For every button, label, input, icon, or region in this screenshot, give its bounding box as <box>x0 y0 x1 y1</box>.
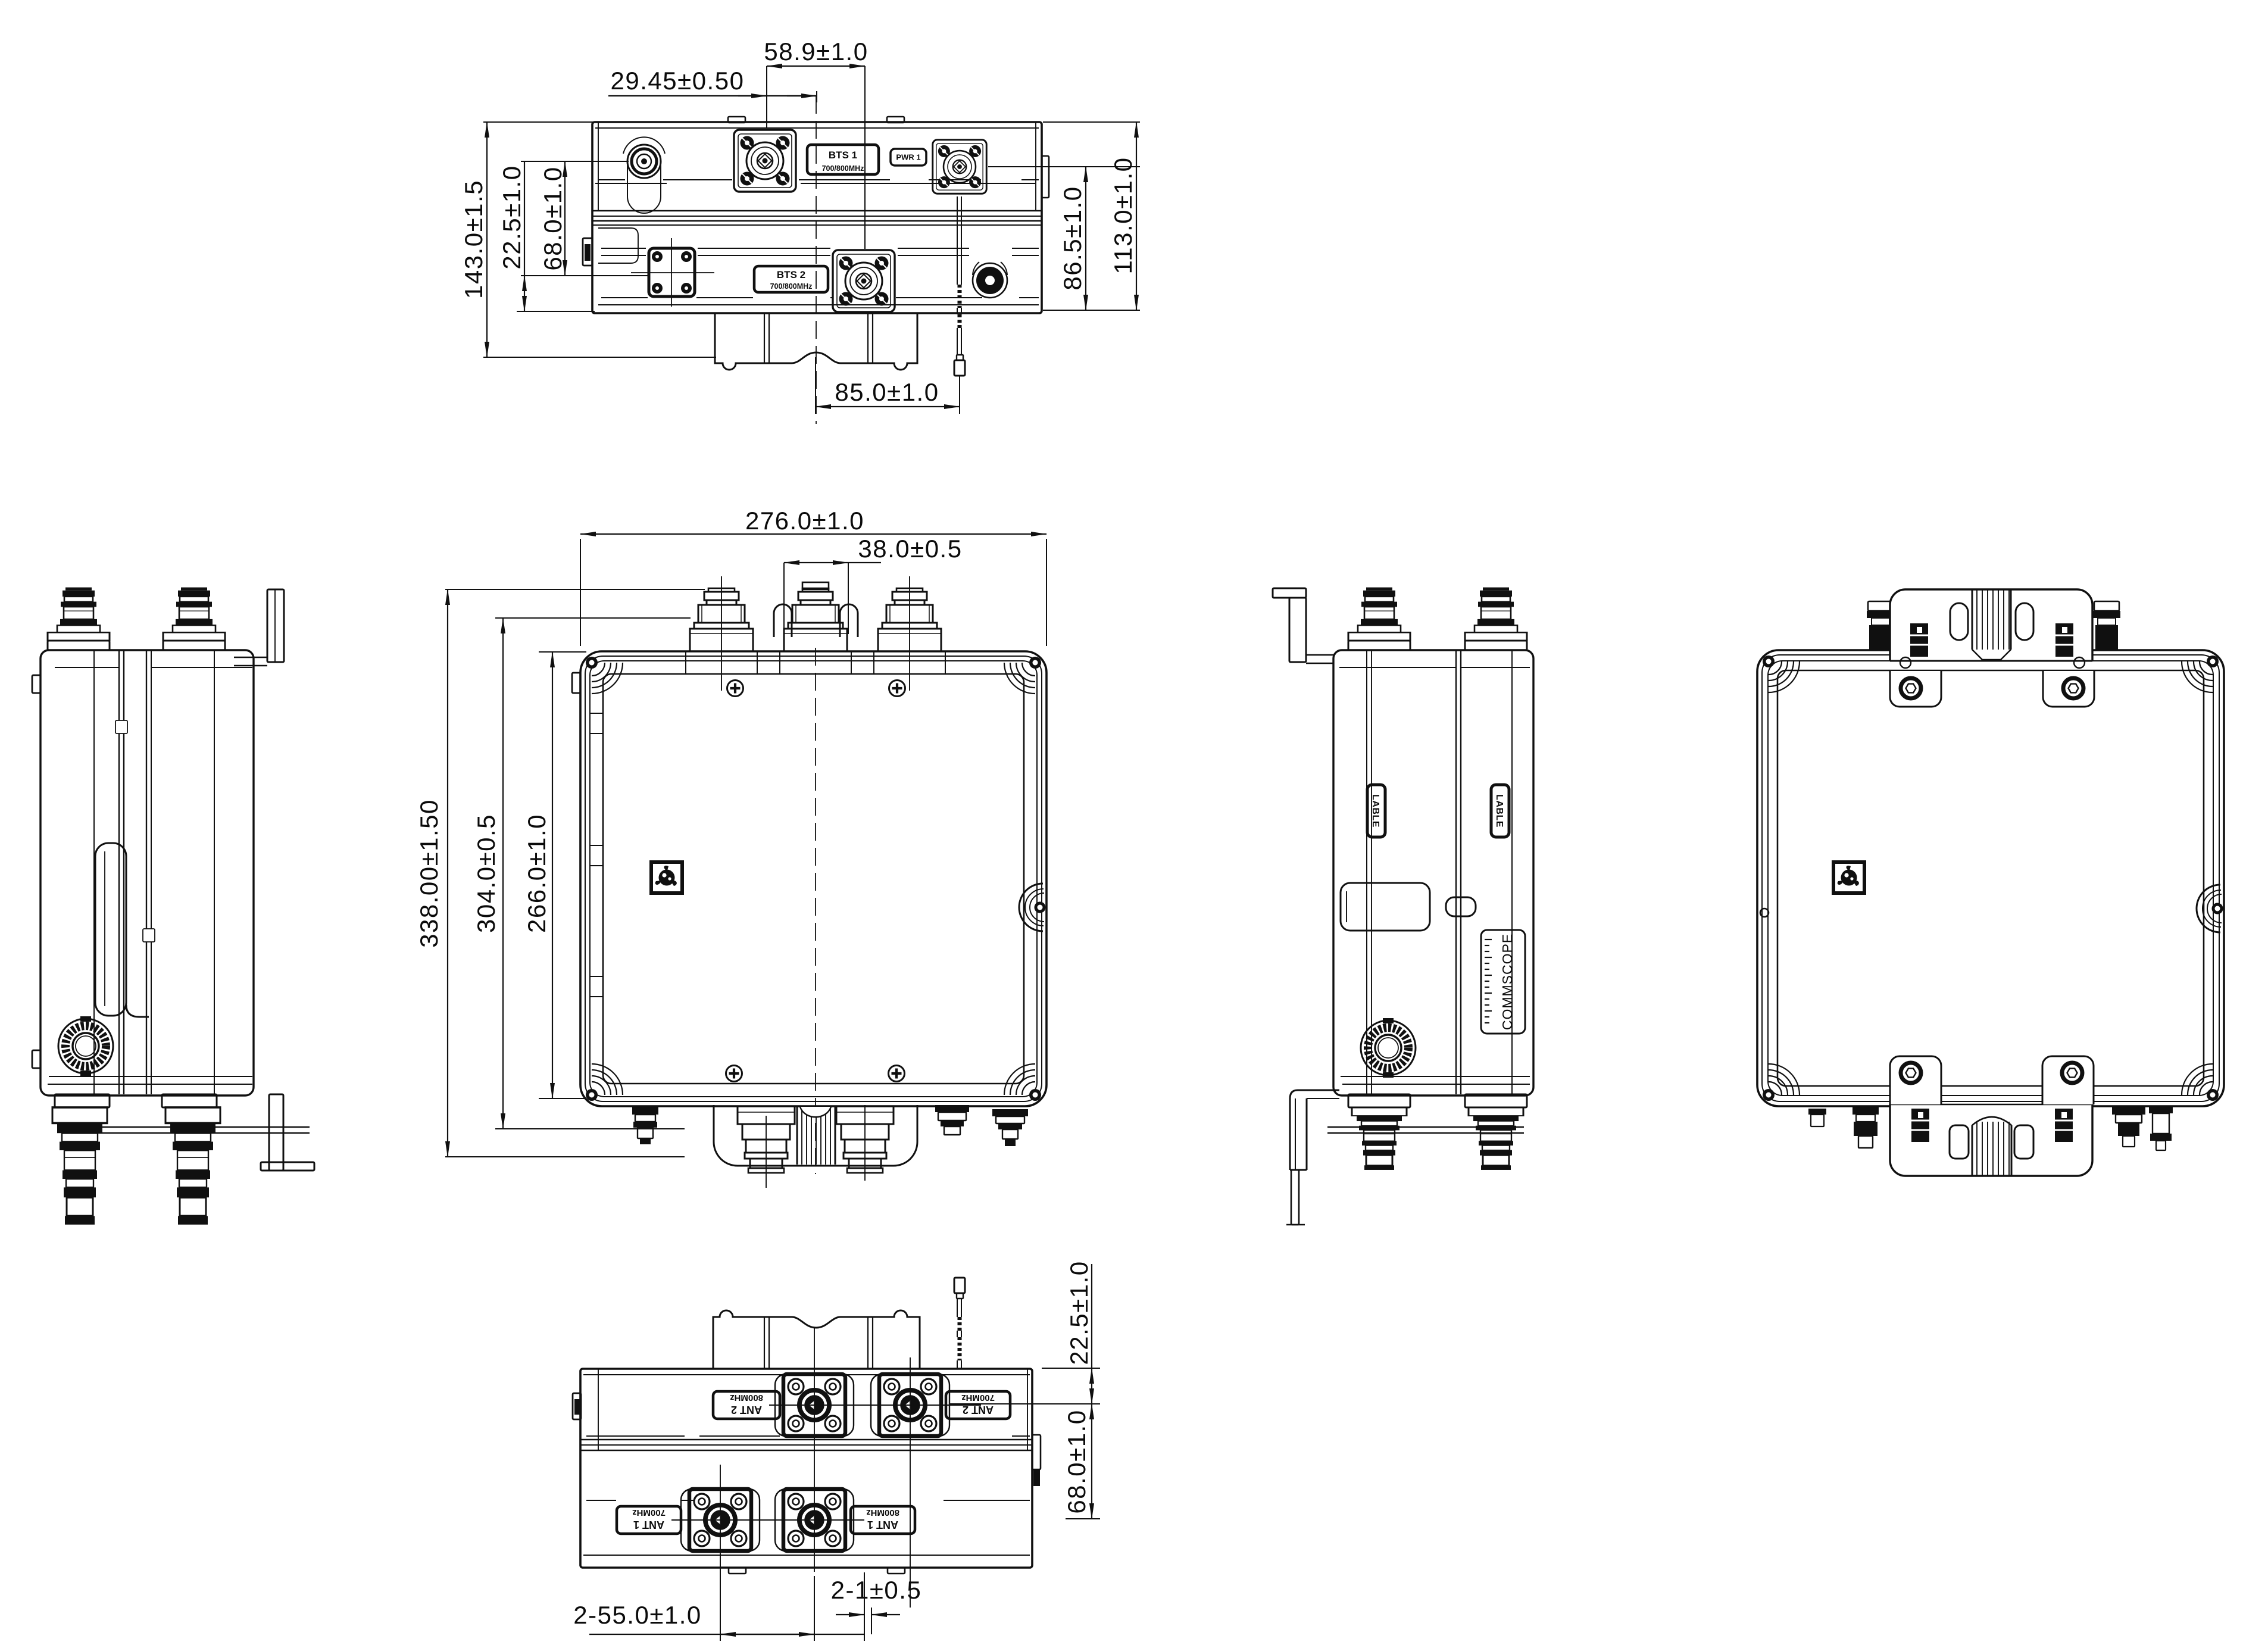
svg-text:700MHz: 700MHz <box>961 1393 995 1403</box>
svg-text:266.0±1.0: 266.0±1.0 <box>523 814 551 933</box>
svg-text:2-55.0±1.0: 2-55.0±1.0 <box>573 1601 702 1629</box>
svg-text:68.0±1.0: 68.0±1.0 <box>539 166 567 270</box>
svg-text:85.0±1.0: 85.0±1.0 <box>835 378 939 406</box>
svg-text:2-1±0.5: 2-1±0.5 <box>831 1576 922 1604</box>
svg-text:113.0±1.0: 113.0±1.0 <box>1109 157 1137 274</box>
svg-text:ANT 1: ANT 1 <box>633 1519 664 1531</box>
svg-text:COMMSCOPE: COMMSCOPE <box>1499 934 1515 1030</box>
svg-text:58.9±1.0: 58.9±1.0 <box>764 38 868 65</box>
svg-text:38.0±0.5: 38.0±0.5 <box>858 535 962 563</box>
svg-text:22.5±1.0: 22.5±1.0 <box>498 165 526 269</box>
svg-text:700/800MHz: 700/800MHz <box>770 282 813 291</box>
svg-text:304.0±0.5: 304.0±0.5 <box>472 814 500 933</box>
svg-text:800MHz: 800MHz <box>730 1393 763 1403</box>
svg-text:LABLE: LABLE <box>1494 794 1504 828</box>
svg-text:ANT 2: ANT 2 <box>963 1404 994 1416</box>
svg-text:22.5±1.0: 22.5±1.0 <box>1065 1260 1093 1365</box>
svg-text:ANT 1: ANT 1 <box>867 1519 898 1531</box>
svg-text:276.0±1.0: 276.0±1.0 <box>745 507 864 535</box>
svg-text:700MHz: 700MHz <box>632 1507 666 1518</box>
svg-text:143.0±1.5: 143.0±1.5 <box>460 180 488 299</box>
svg-text:29.45±0.50: 29.45±0.50 <box>611 67 745 95</box>
svg-text:LABLE: LABLE <box>1370 794 1380 828</box>
svg-text:PWR 1: PWR 1 <box>896 153 920 162</box>
svg-text:800MHz: 800MHz <box>866 1507 899 1518</box>
svg-text:68.0±1.0: 68.0±1.0 <box>1063 1409 1091 1513</box>
svg-text:BTS 2: BTS 2 <box>777 269 805 280</box>
svg-text:86.5±1.0: 86.5±1.0 <box>1058 186 1086 290</box>
svg-text:BTS 1: BTS 1 <box>829 149 857 161</box>
svg-text:ANT 2: ANT 2 <box>731 1404 762 1416</box>
svg-text:338.00±1.50: 338.00±1.50 <box>415 799 443 948</box>
svg-text:700/800MHz: 700/800MHz <box>822 164 864 173</box>
